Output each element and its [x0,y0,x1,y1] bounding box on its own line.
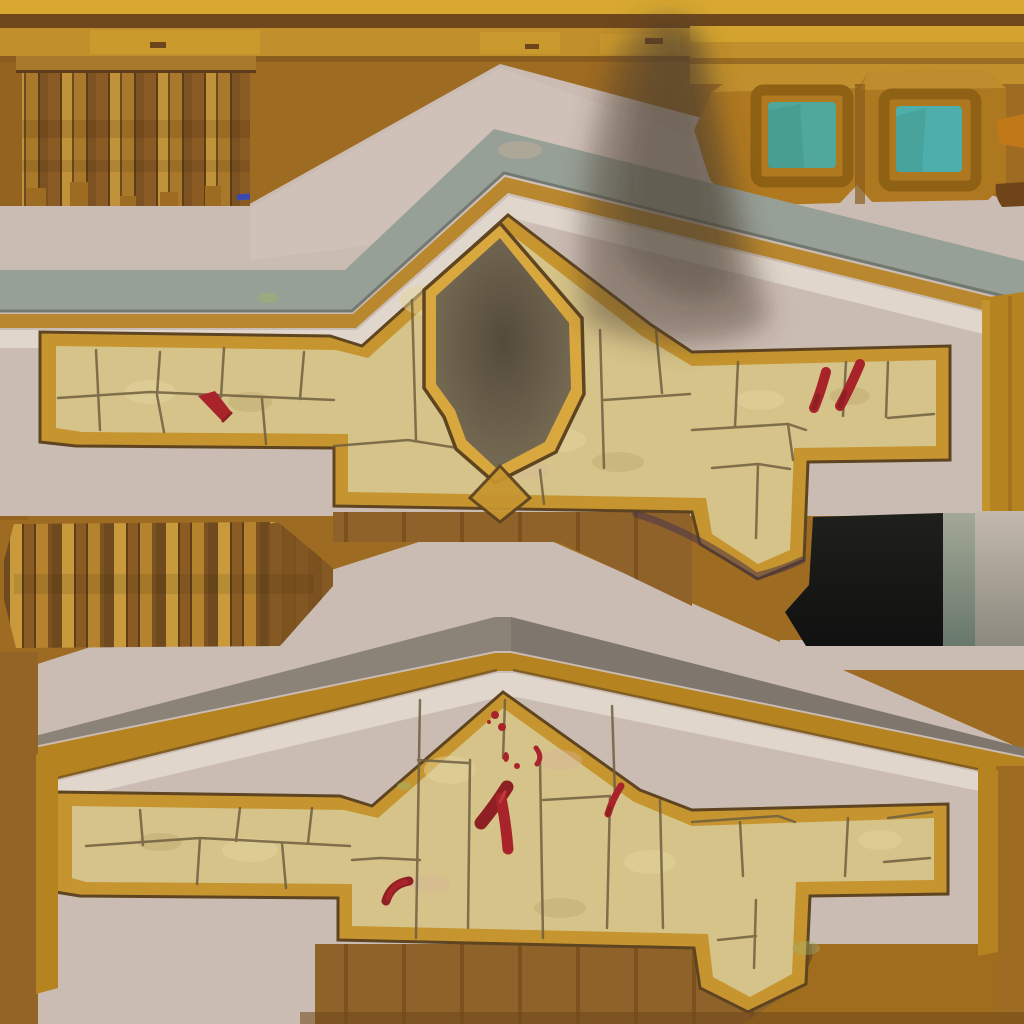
fence-ragged-3 [120,196,136,206]
texture-atlas-svg [0,0,1024,1024]
bottom-dark-strip [300,1012,1024,1024]
blood-dot [491,711,499,719]
right-beam-highlight [690,26,1024,42]
fence-smear-2 [22,160,250,172]
stone-patch-pink [538,750,582,770]
opening-band-green [943,513,975,646]
upper-left-plank-fence [16,56,256,206]
beam-top-highlight [0,0,1024,16]
fence-ragged-5 [205,186,221,206]
fence-ragged-2 [70,182,88,206]
fence-ragged-1 [26,188,46,206]
beam-light-patch-1 [90,30,260,54]
stone-patch-dark [592,452,644,472]
blood-thin-tip [608,808,610,814]
glass-right-shade [896,108,926,172]
window-panels [690,26,1024,206]
beam-knot-1 [150,42,166,48]
middle-plank-strip [4,522,333,648]
blood-run-down [501,798,508,849]
lower-right-gold-trim [978,766,998,956]
black-opening [780,511,1024,670]
stone-patch-pink [498,141,542,159]
lower-left-gold-trim [36,754,58,994]
blood-drop [503,752,509,762]
fence-smear-1 [22,120,250,138]
mid-planks-smear [14,574,314,594]
stone-patch-green [397,782,411,790]
panel-right-bevel [860,70,1006,90]
panel-gap-shadow [855,84,865,204]
blue-pixel-artifact [237,194,250,201]
right-beam-seam [690,58,1024,64]
opening-band-warm [975,511,1024,646]
stone-patch-green [792,941,820,955]
upper-right-ochre-band [982,292,1024,514]
fence-top-rail [16,56,256,72]
stone-patch [858,830,902,850]
glass-left-shade [768,104,804,168]
lower-left-brown-strip [0,652,38,1024]
right-edge-dark-shape [996,182,1024,207]
stone-patch [736,390,784,410]
fence-rail-seam [16,70,256,73]
stone-patch [624,850,676,874]
blood-dot [514,763,520,769]
ochre-band-highlight [982,300,990,512]
lower-right-brown-edge [996,766,1024,1024]
fence-ragged-4 [160,192,178,206]
blood-dot [498,723,506,731]
stone-patch-green [258,293,278,303]
blood-dot [487,720,491,724]
right-edge-orange-wedge [996,114,1024,148]
texture-atlas-canvas [0,0,1024,1024]
ochre-band-crease [1008,296,1012,512]
beam-light-patch-2 [480,32,560,54]
beam-knot-2 [525,44,539,49]
